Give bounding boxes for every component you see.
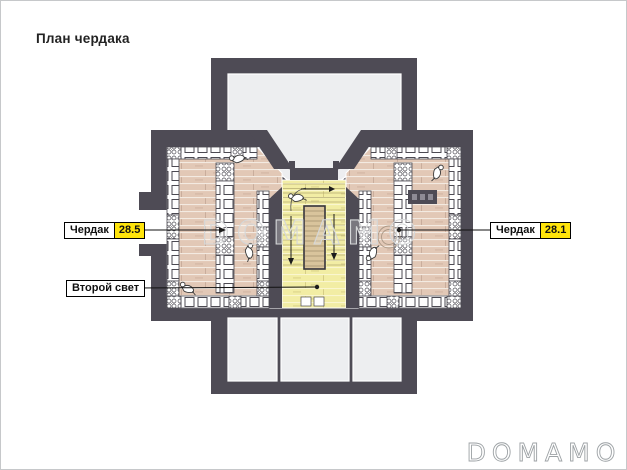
room-name: Чердак xyxy=(65,223,114,238)
leader-dot-right xyxy=(397,228,401,232)
watermark-text: DOMAMO xyxy=(202,213,425,252)
wall-pier-left-top xyxy=(139,192,151,210)
brand-logo: DOMAMO xyxy=(467,438,622,467)
lower-roof-sections xyxy=(228,318,401,381)
stair-landing-wall xyxy=(290,168,338,180)
room-name: Чердак xyxy=(491,223,540,238)
room-label-attic-right: Чердак 28.1 xyxy=(490,222,571,239)
room-area-value: 28.5 xyxy=(114,223,144,238)
room-label-second-light: Второй свет xyxy=(66,280,145,297)
chimney-block xyxy=(408,190,437,204)
room-name: Второй свет xyxy=(67,281,144,296)
room-label-attic-left: Чердак 28.5 xyxy=(64,222,145,239)
room-area-value: 28.1 xyxy=(540,223,570,238)
leader-dot-second-light xyxy=(315,285,319,289)
wall-opening-left xyxy=(149,210,169,244)
attic-plan-page: DOMAMO DOMAMO План чердака Чердак 28.5 В… xyxy=(0,0,627,470)
page-title: План чердака xyxy=(36,31,130,46)
wall-pier-left-bottom xyxy=(139,244,151,256)
